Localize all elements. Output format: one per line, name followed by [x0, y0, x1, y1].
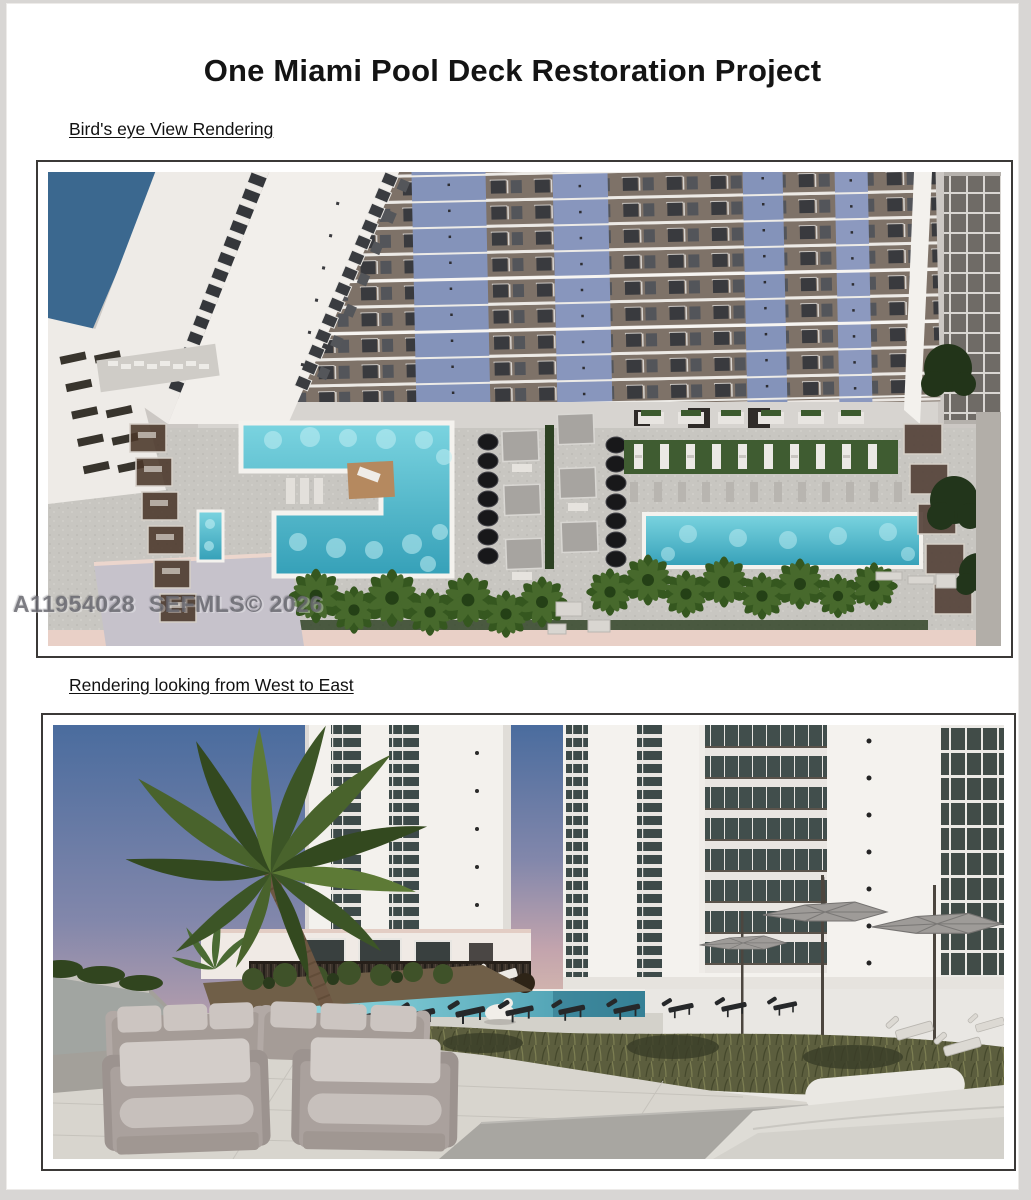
tower-right	[563, 725, 1004, 989]
figure-1-frame	[36, 160, 1013, 658]
page-title: One Miami Pool Deck Restoration Project	[6, 53, 1019, 89]
figure-2-frame	[41, 713, 1016, 1171]
figure-2-heading: Rendering looking from West to East	[69, 675, 354, 696]
birds-eye-rendering-image	[48, 172, 1001, 646]
lap-pool	[198, 511, 223, 561]
document-page: One Miami Pool Deck Restoration Project …	[6, 3, 1019, 1190]
figure-1-heading: Bird's eye View Rendering	[69, 119, 273, 140]
west-to-east-rendering-image	[53, 725, 1004, 1159]
mls-watermark: A11954028 SEFMLS© 2026	[13, 591, 323, 618]
center-hedge	[545, 425, 554, 569]
aerial-towers	[48, 172, 1001, 434]
